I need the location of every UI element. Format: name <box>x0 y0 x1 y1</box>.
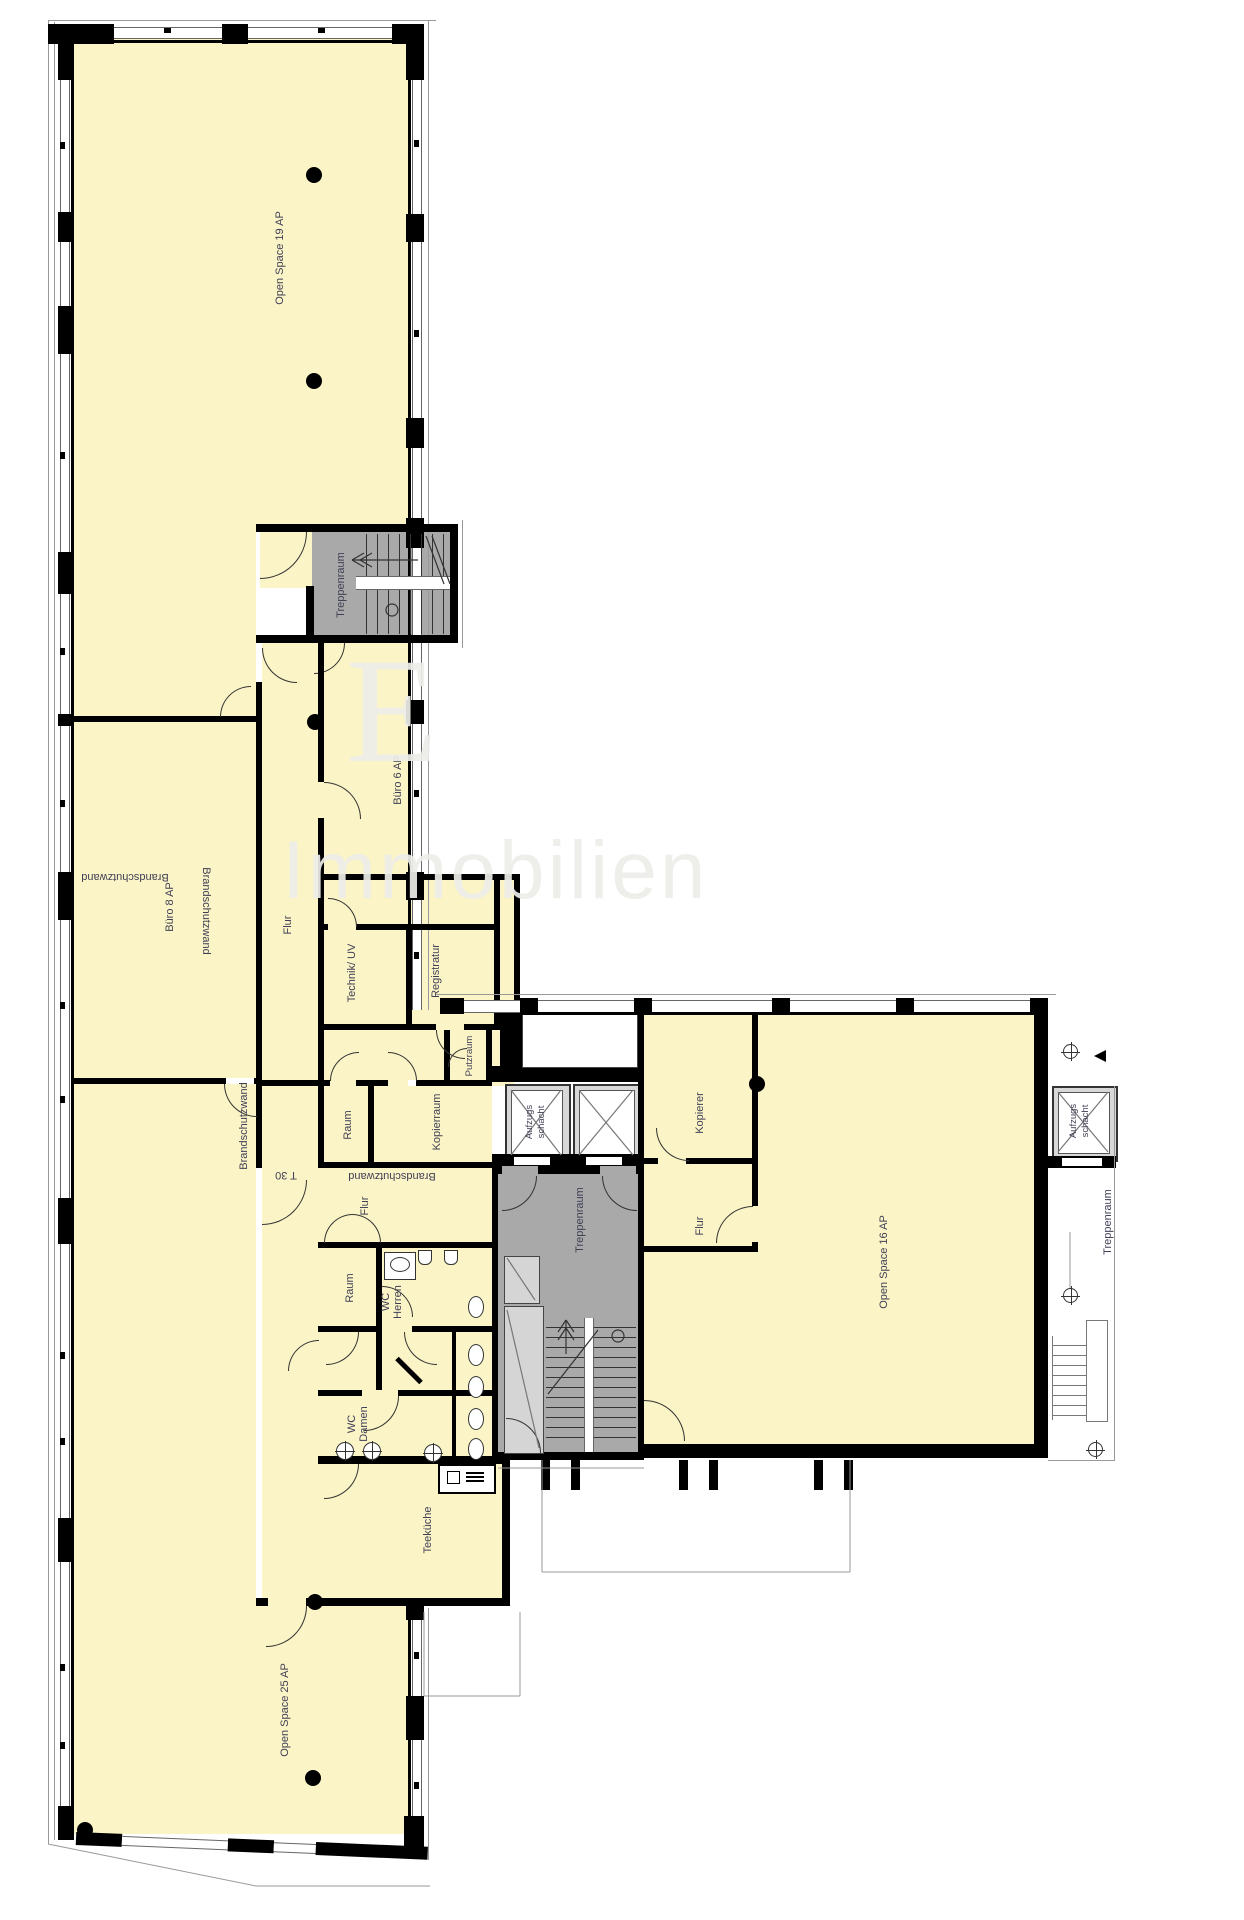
room-label-technik-uv: Technik/ UV <box>346 944 358 1003</box>
label-aufzugsschacht-east: Aufzugs schacht <box>1068 1104 1092 1138</box>
room-label-buero-6: Büro 6 AP <box>392 755 404 805</box>
floor-plan: Open Space 19 AP Treppenraum Büro 6 AP B… <box>0 0 1244 1920</box>
label-aufzugsschacht-core: Aufzugs schacht <box>524 1105 548 1139</box>
room-label-treppenraum-top: Treppenraum <box>335 552 347 618</box>
room-label-open-space-25: Open Space 25 AP <box>279 1663 291 1757</box>
label-brandschutzwand-west: Brandschutzwand <box>81 871 168 883</box>
room-label-kopierer: Kopierer <box>694 1092 706 1134</box>
room-label-wc-herren: WC Herren <box>380 1285 404 1319</box>
room-label-raum-core: Raum <box>342 1110 354 1139</box>
room-label-raum-wc: Raum <box>344 1273 356 1302</box>
room-label-treppenraum-east: Treppenraum <box>1102 1189 1114 1255</box>
room-label-open-space-19: Open Space 19 AP <box>274 211 286 305</box>
label-t30-fire-door: T 30 <box>275 1169 297 1181</box>
room-label-registratur: Registratur <box>430 944 442 998</box>
room-label-kopierraum: Kopierraum <box>431 1094 443 1151</box>
room-label-flur-west: Flur <box>282 916 294 935</box>
room-label-teekueche: Teeküche <box>422 1506 434 1553</box>
label-brandschutzwand-core-h: Brandschutzwand <box>348 1170 435 1182</box>
room-label-flur-mid: Flur <box>359 1197 371 1216</box>
label-brandschutzwand-core-v: Brandschutzwand <box>238 1082 250 1169</box>
room-label-treppenraum-core: Treppenraum <box>574 1187 586 1253</box>
room-label-buero-8: Büro 8 AP <box>164 882 176 932</box>
room-label-wc-damen: WC Damen <box>346 1406 370 1441</box>
room-label-flur-east: Flur <box>694 1217 706 1236</box>
label-brandschutzwand-mid: Brandschutzwand <box>200 867 212 954</box>
room-label-putzraum: Putzraum <box>464 1036 476 1077</box>
room-label-open-space-16: Open Space 16 AP <box>878 1215 890 1309</box>
plan-linework <box>0 0 1244 1920</box>
